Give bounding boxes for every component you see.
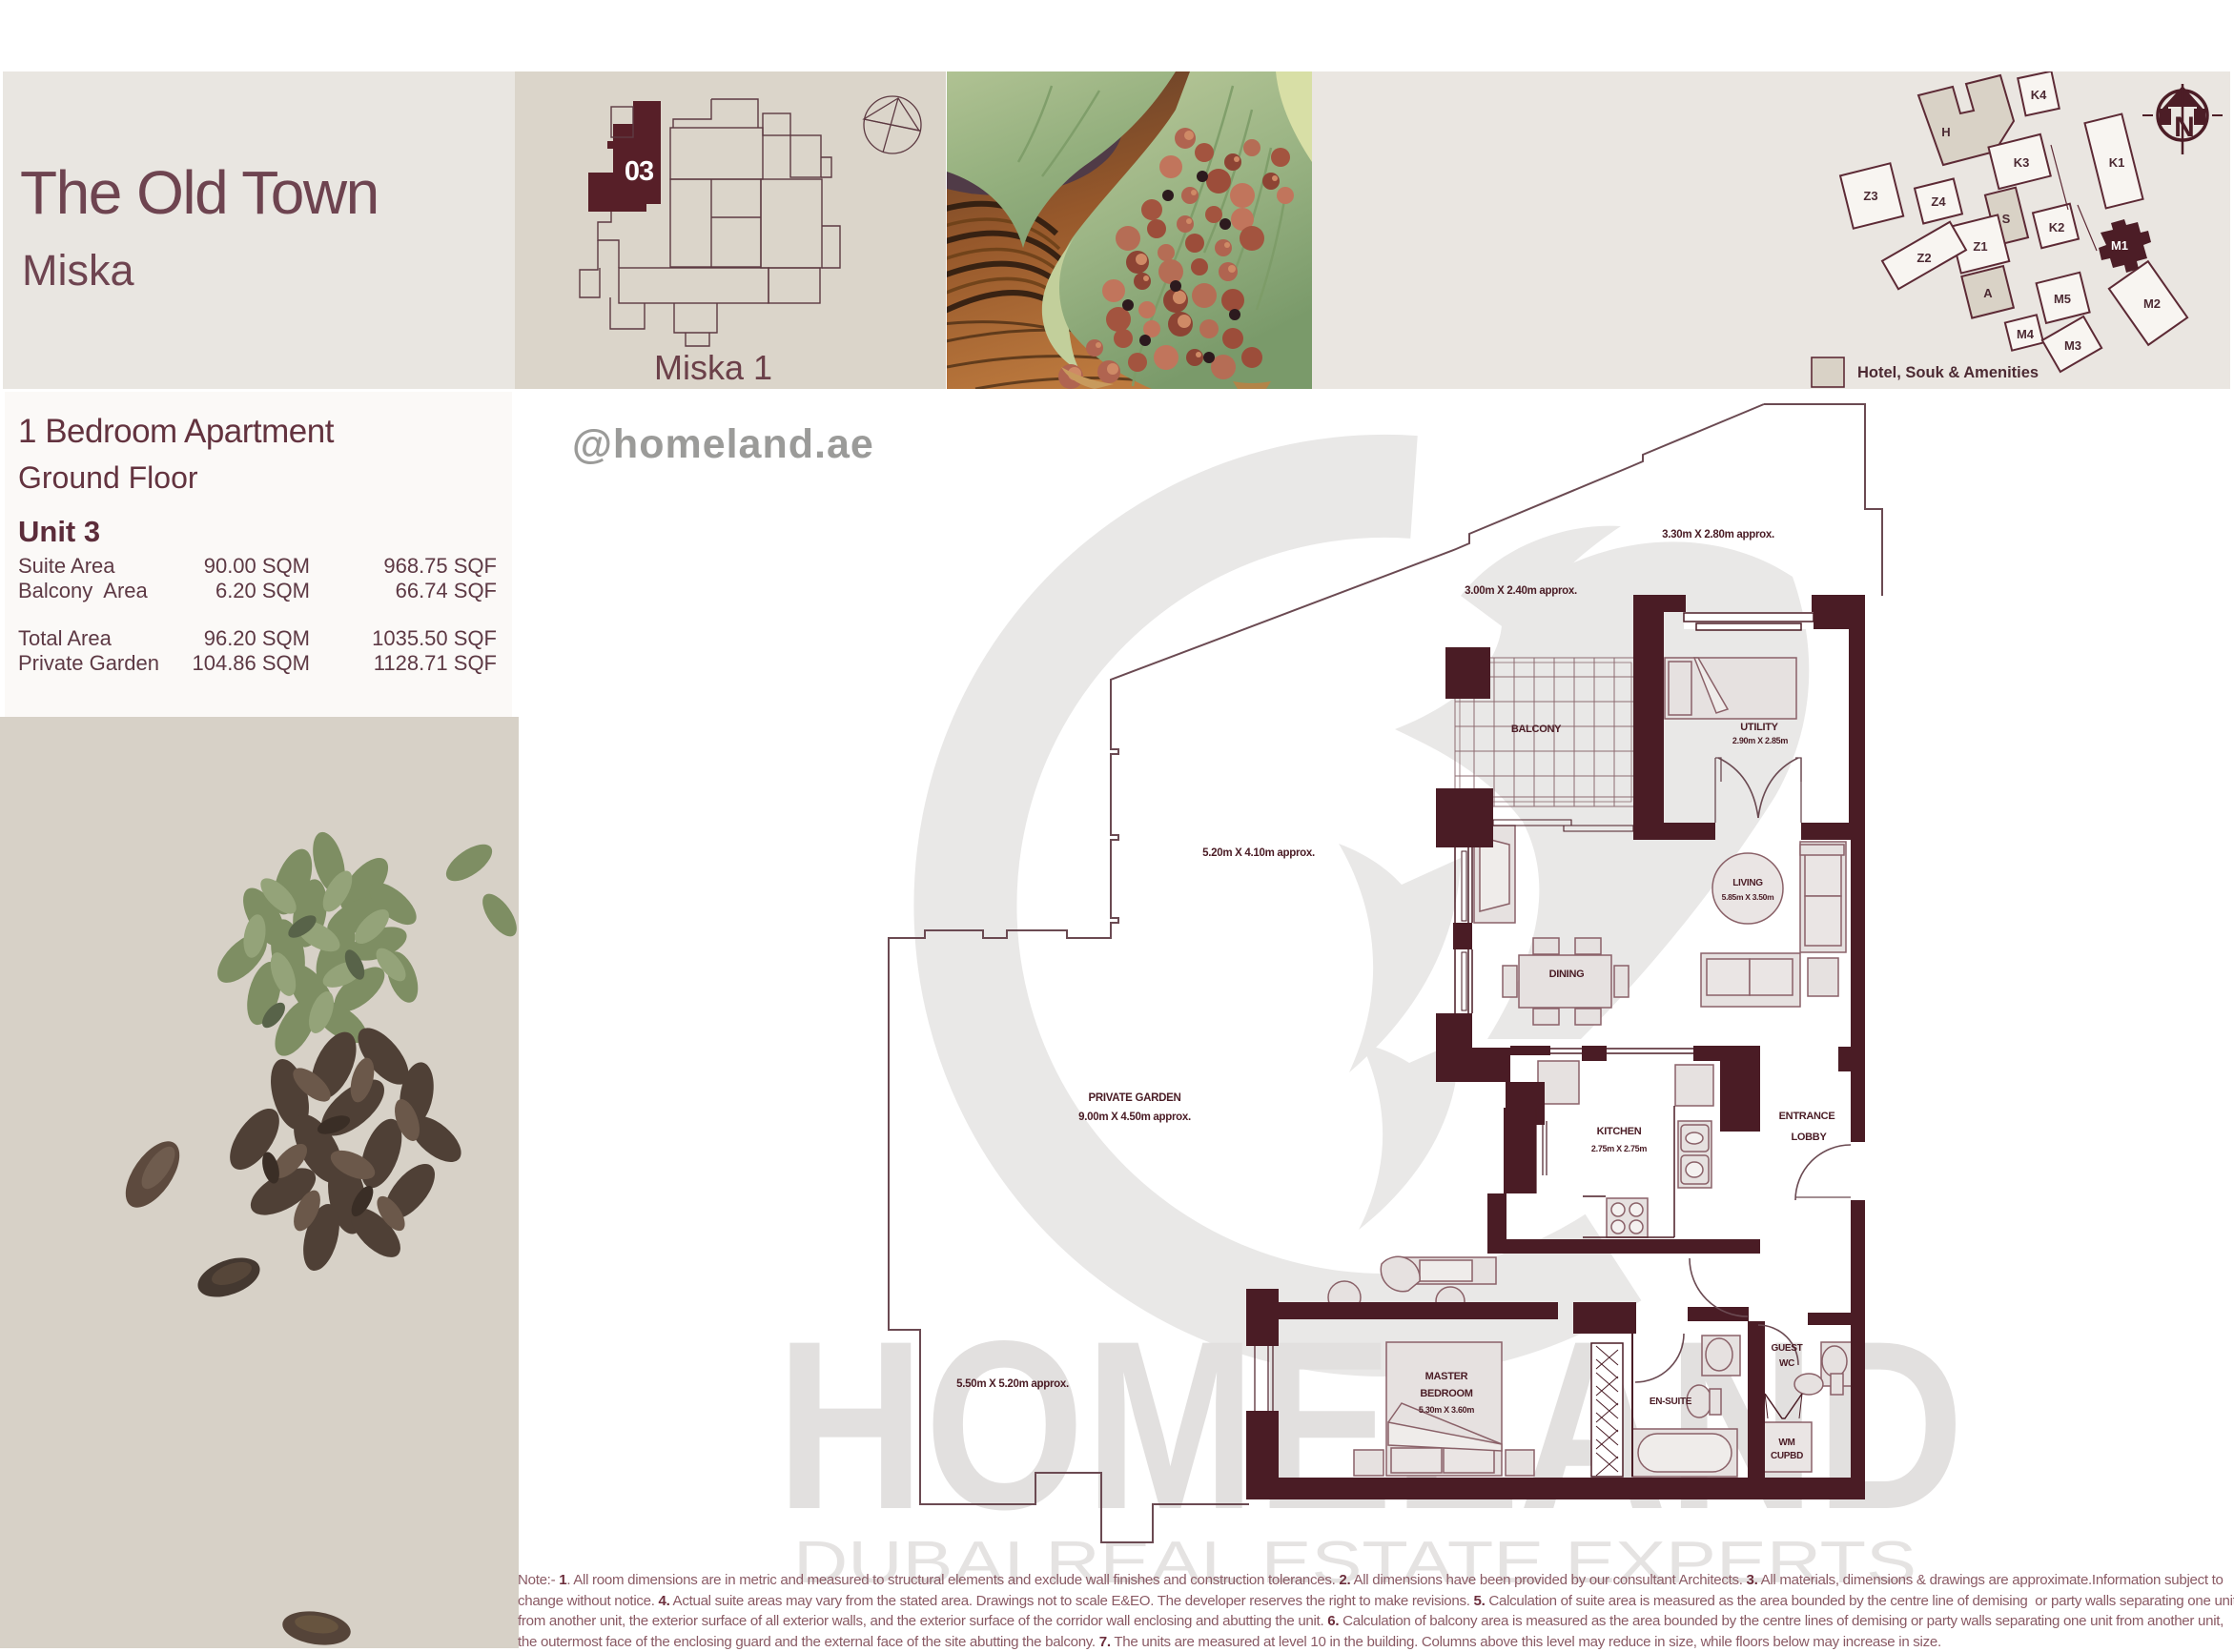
svg-text:K2: K2	[2049, 220, 2065, 235]
svg-text:K1: K1	[2109, 155, 2125, 170]
svg-text:WC: WC	[1779, 1358, 1794, 1369]
svg-text:ENTRANCE: ENTRANCE	[1779, 1111, 1835, 1122]
svg-text:5.30m X 3.60m: 5.30m X 3.60m	[1419, 1405, 1474, 1415]
svg-text:Hotel, Souk & Amenities: Hotel, Souk & Amenities	[1857, 364, 2039, 381]
svg-text:H: H	[1941, 125, 1950, 139]
svg-text:Miska 1: Miska 1	[654, 348, 772, 387]
svg-text:PRIVATE GARDEN: PRIVATE GARDEN	[1089, 1092, 1181, 1104]
svg-text:CUPBD: CUPBD	[1771, 1451, 1803, 1461]
svg-text:Z2: Z2	[1916, 251, 1931, 265]
svg-text:K4: K4	[2031, 88, 2047, 102]
svg-text:A: A	[1983, 286, 1993, 300]
svg-text:M1: M1	[2111, 238, 2128, 253]
svg-text:5.20m X 4.10m approx.: 5.20m X 4.10m approx.	[1202, 847, 1315, 859]
svg-text:5.50m X 5.20m approx.: 5.50m X 5.20m approx.	[956, 1378, 1069, 1390]
svg-text:BALCONY: BALCONY	[1511, 724, 1562, 735]
svg-text:Z3: Z3	[1863, 189, 1877, 203]
svg-text:2.90m X 2.85m: 2.90m X 2.85m	[1732, 736, 1788, 745]
svg-text:EN-SUITE: EN-SUITE	[1650, 1397, 1692, 1407]
svg-text:M4: M4	[2017, 327, 2035, 341]
svg-text:S: S	[2002, 212, 2011, 226]
svg-text:03: 03	[625, 156, 654, 187]
svg-text:M3: M3	[2064, 338, 2081, 353]
svg-text:LIVING: LIVING	[1732, 878, 1763, 888]
svg-text:K3: K3	[2014, 155, 2030, 170]
svg-text:9.00m X 4.50m approx.: 9.00m X 4.50m approx.	[1078, 1112, 1191, 1123]
svg-text:LOBBY: LOBBY	[1791, 1132, 1827, 1143]
svg-text:2.75m X 2.75m: 2.75m X 2.75m	[1591, 1144, 1647, 1153]
svg-text:3.00m X 2.40m approx.: 3.00m X 2.40m approx.	[1465, 585, 1577, 597]
svg-text:5.85m X 3.50m: 5.85m X 3.50m	[1722, 892, 1774, 902]
svg-text:M2: M2	[2143, 296, 2161, 311]
svg-text:UTILITY: UTILITY	[1740, 722, 1778, 733]
svg-text:Z4: Z4	[1931, 194, 1946, 209]
svg-text:GUEST: GUEST	[1772, 1343, 1803, 1354]
svg-text:N: N	[2174, 112, 2195, 143]
svg-text:MASTER: MASTER	[1425, 1371, 1468, 1382]
svg-text:M5: M5	[2054, 292, 2071, 306]
svg-text:DINING: DINING	[1549, 969, 1585, 980]
svg-text:WM: WM	[1778, 1438, 1794, 1448]
svg-text:3.30m X 2.80m approx.: 3.30m X 2.80m approx.	[1662, 529, 1774, 540]
svg-text:BEDROOM: BEDROOM	[1420, 1388, 1472, 1399]
svg-text:Z1: Z1	[1973, 239, 1987, 254]
svg-text:KITCHEN: KITCHEN	[1597, 1126, 1642, 1137]
